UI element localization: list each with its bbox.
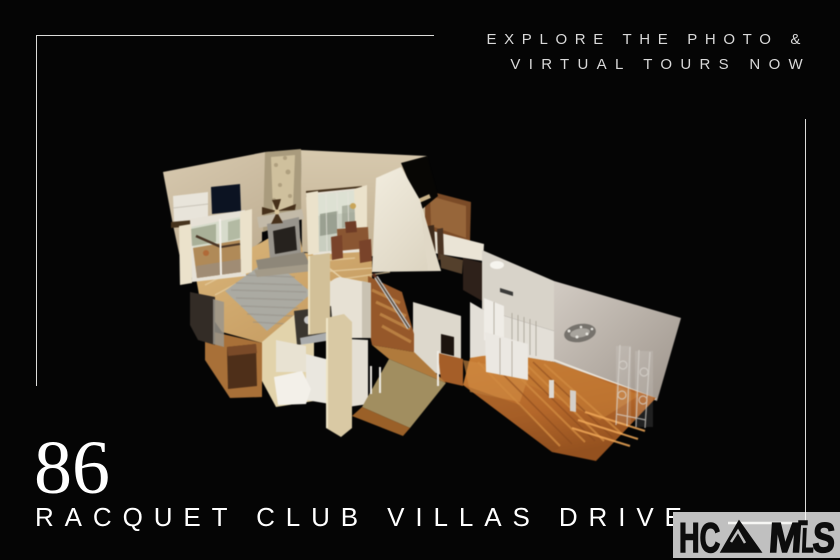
svg-text:HC: HC — [679, 513, 720, 560]
svg-text:S: S — [811, 516, 836, 560]
